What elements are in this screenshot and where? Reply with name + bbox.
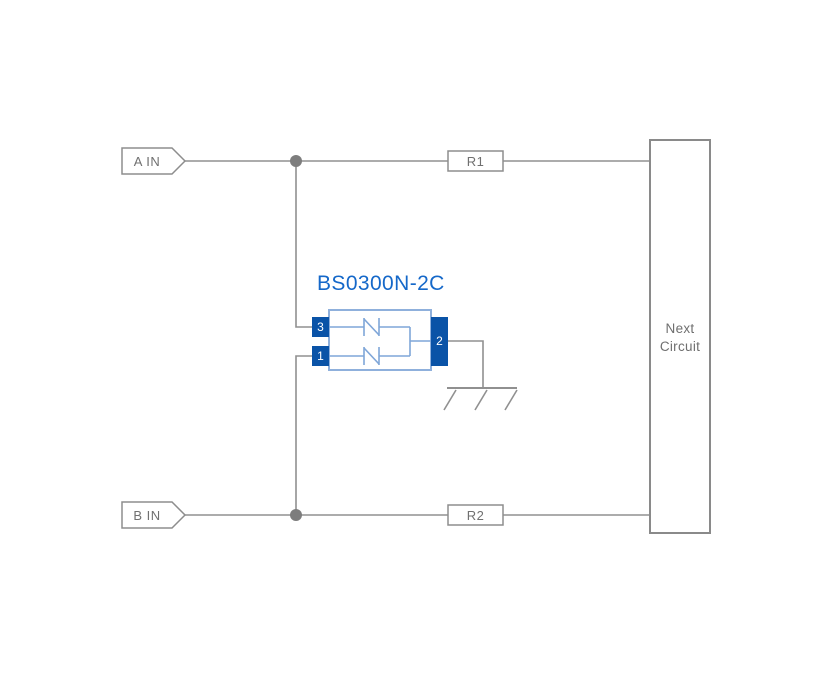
input-label-a-in: A IN [122,155,172,168]
junction-dot-b [290,509,302,521]
tvs-component [312,310,448,370]
component-body [329,310,431,370]
next-circuit-label-line2: Circuit [650,338,710,356]
ground-hatch-1 [444,390,456,410]
wire-a-branch-to-pin3 [296,161,312,327]
input-label-b-in: B IN [122,509,172,522]
wire-b-branch-to-pin1 [296,356,312,515]
component-part-number: BS0300N-2C [317,272,477,296]
junction-dot-a [290,155,302,167]
pin1-number: 1 [312,346,329,366]
next-circuit-label: Next Circuit [650,320,710,356]
pin2-number: 2 [431,331,448,351]
ground-hatch-2 [475,390,487,410]
wire-pin2-to-ground [448,341,483,388]
resistor-label-r2: R2 [448,509,503,522]
resistor-label-r1: R1 [448,155,503,168]
next-circuit-label-line1: Next [650,320,710,338]
pin3-number: 3 [312,317,329,337]
ground-icon [444,388,517,410]
circuit-diagram: A IN B IN R1 R2 Next Circuit BS0300N-2C … [0,0,832,675]
ground-hatch-3 [505,390,517,410]
